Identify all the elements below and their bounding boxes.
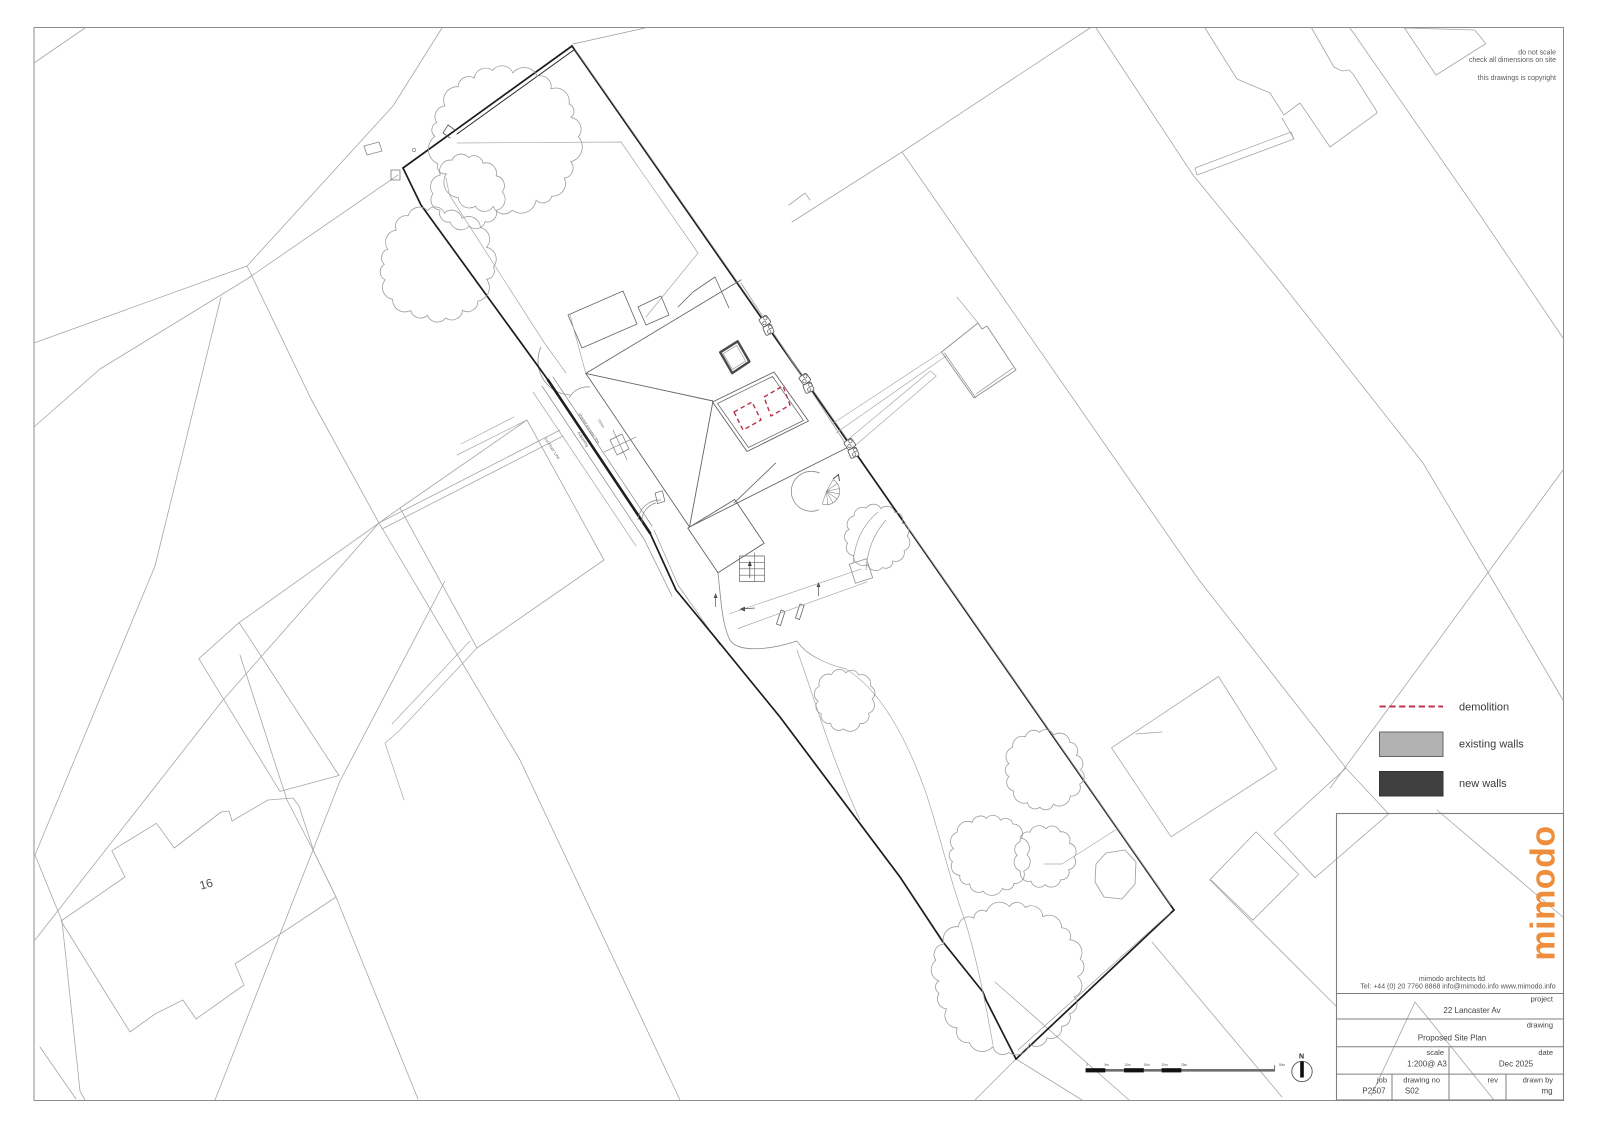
svg-text:new walls: new walls [1459, 778, 1507, 790]
svg-text:N: N [1299, 1054, 1304, 1061]
svg-text:20m: 20m [1162, 1063, 1169, 1067]
svg-text:10m: 10m [1125, 1063, 1132, 1067]
svg-text:Dec 2025: Dec 2025 [1499, 1060, 1534, 1069]
svg-text:drawing no: drawing no [1403, 1076, 1440, 1085]
svg-text:rev: rev [1488, 1076, 1499, 1085]
svg-text:mimodo: mimodo [1525, 825, 1563, 960]
svg-text:do not scale: do not scale [1518, 50, 1556, 57]
svg-text:demolition: demolition [1459, 702, 1509, 714]
svg-text:project: project [1530, 995, 1553, 1004]
svg-text:drawing: drawing [1527, 1021, 1553, 1030]
svg-text:job: job [1376, 1076, 1387, 1085]
svg-text:25m: 25m [1181, 1063, 1188, 1067]
svg-text:5m: 5m [1105, 1063, 1110, 1067]
svg-text:date: date [1538, 1048, 1553, 1057]
svg-text:50m: 50m [1279, 1063, 1286, 1067]
svg-text:drawn by: drawn by [1523, 1076, 1554, 1085]
svg-text:S02: S02 [1405, 1087, 1420, 1096]
svg-text:scale: scale [1426, 1048, 1444, 1057]
svg-text:check all dimensions on site: check all dimensions on site [1469, 57, 1556, 64]
svg-text:P2507: P2507 [1362, 1087, 1386, 1096]
svg-text:0: 0 [1086, 1063, 1088, 1067]
svg-text:1:200@ A3: 1:200@ A3 [1407, 1060, 1447, 1069]
svg-text:existing walls: existing walls [1459, 739, 1524, 751]
svg-text:mg: mg [1541, 1087, 1552, 1096]
svg-text:22 Lancaster Av: 22 Lancaster Av [1443, 1006, 1500, 1015]
svg-text:15m: 15m [1144, 1063, 1151, 1067]
svg-text:Proposed Site Plan: Proposed Site Plan [1418, 1034, 1487, 1043]
svg-text:Tel: +44 (0) 20 7760 8868 in: Tel: +44 (0) 20 7760 8868 info@mimodo.in… [1360, 984, 1555, 991]
svg-text:mimodo architects ltd: mimodo architects ltd [1419, 976, 1485, 983]
svg-text:this drawings is copyright: this drawings is copyright [1478, 75, 1556, 82]
